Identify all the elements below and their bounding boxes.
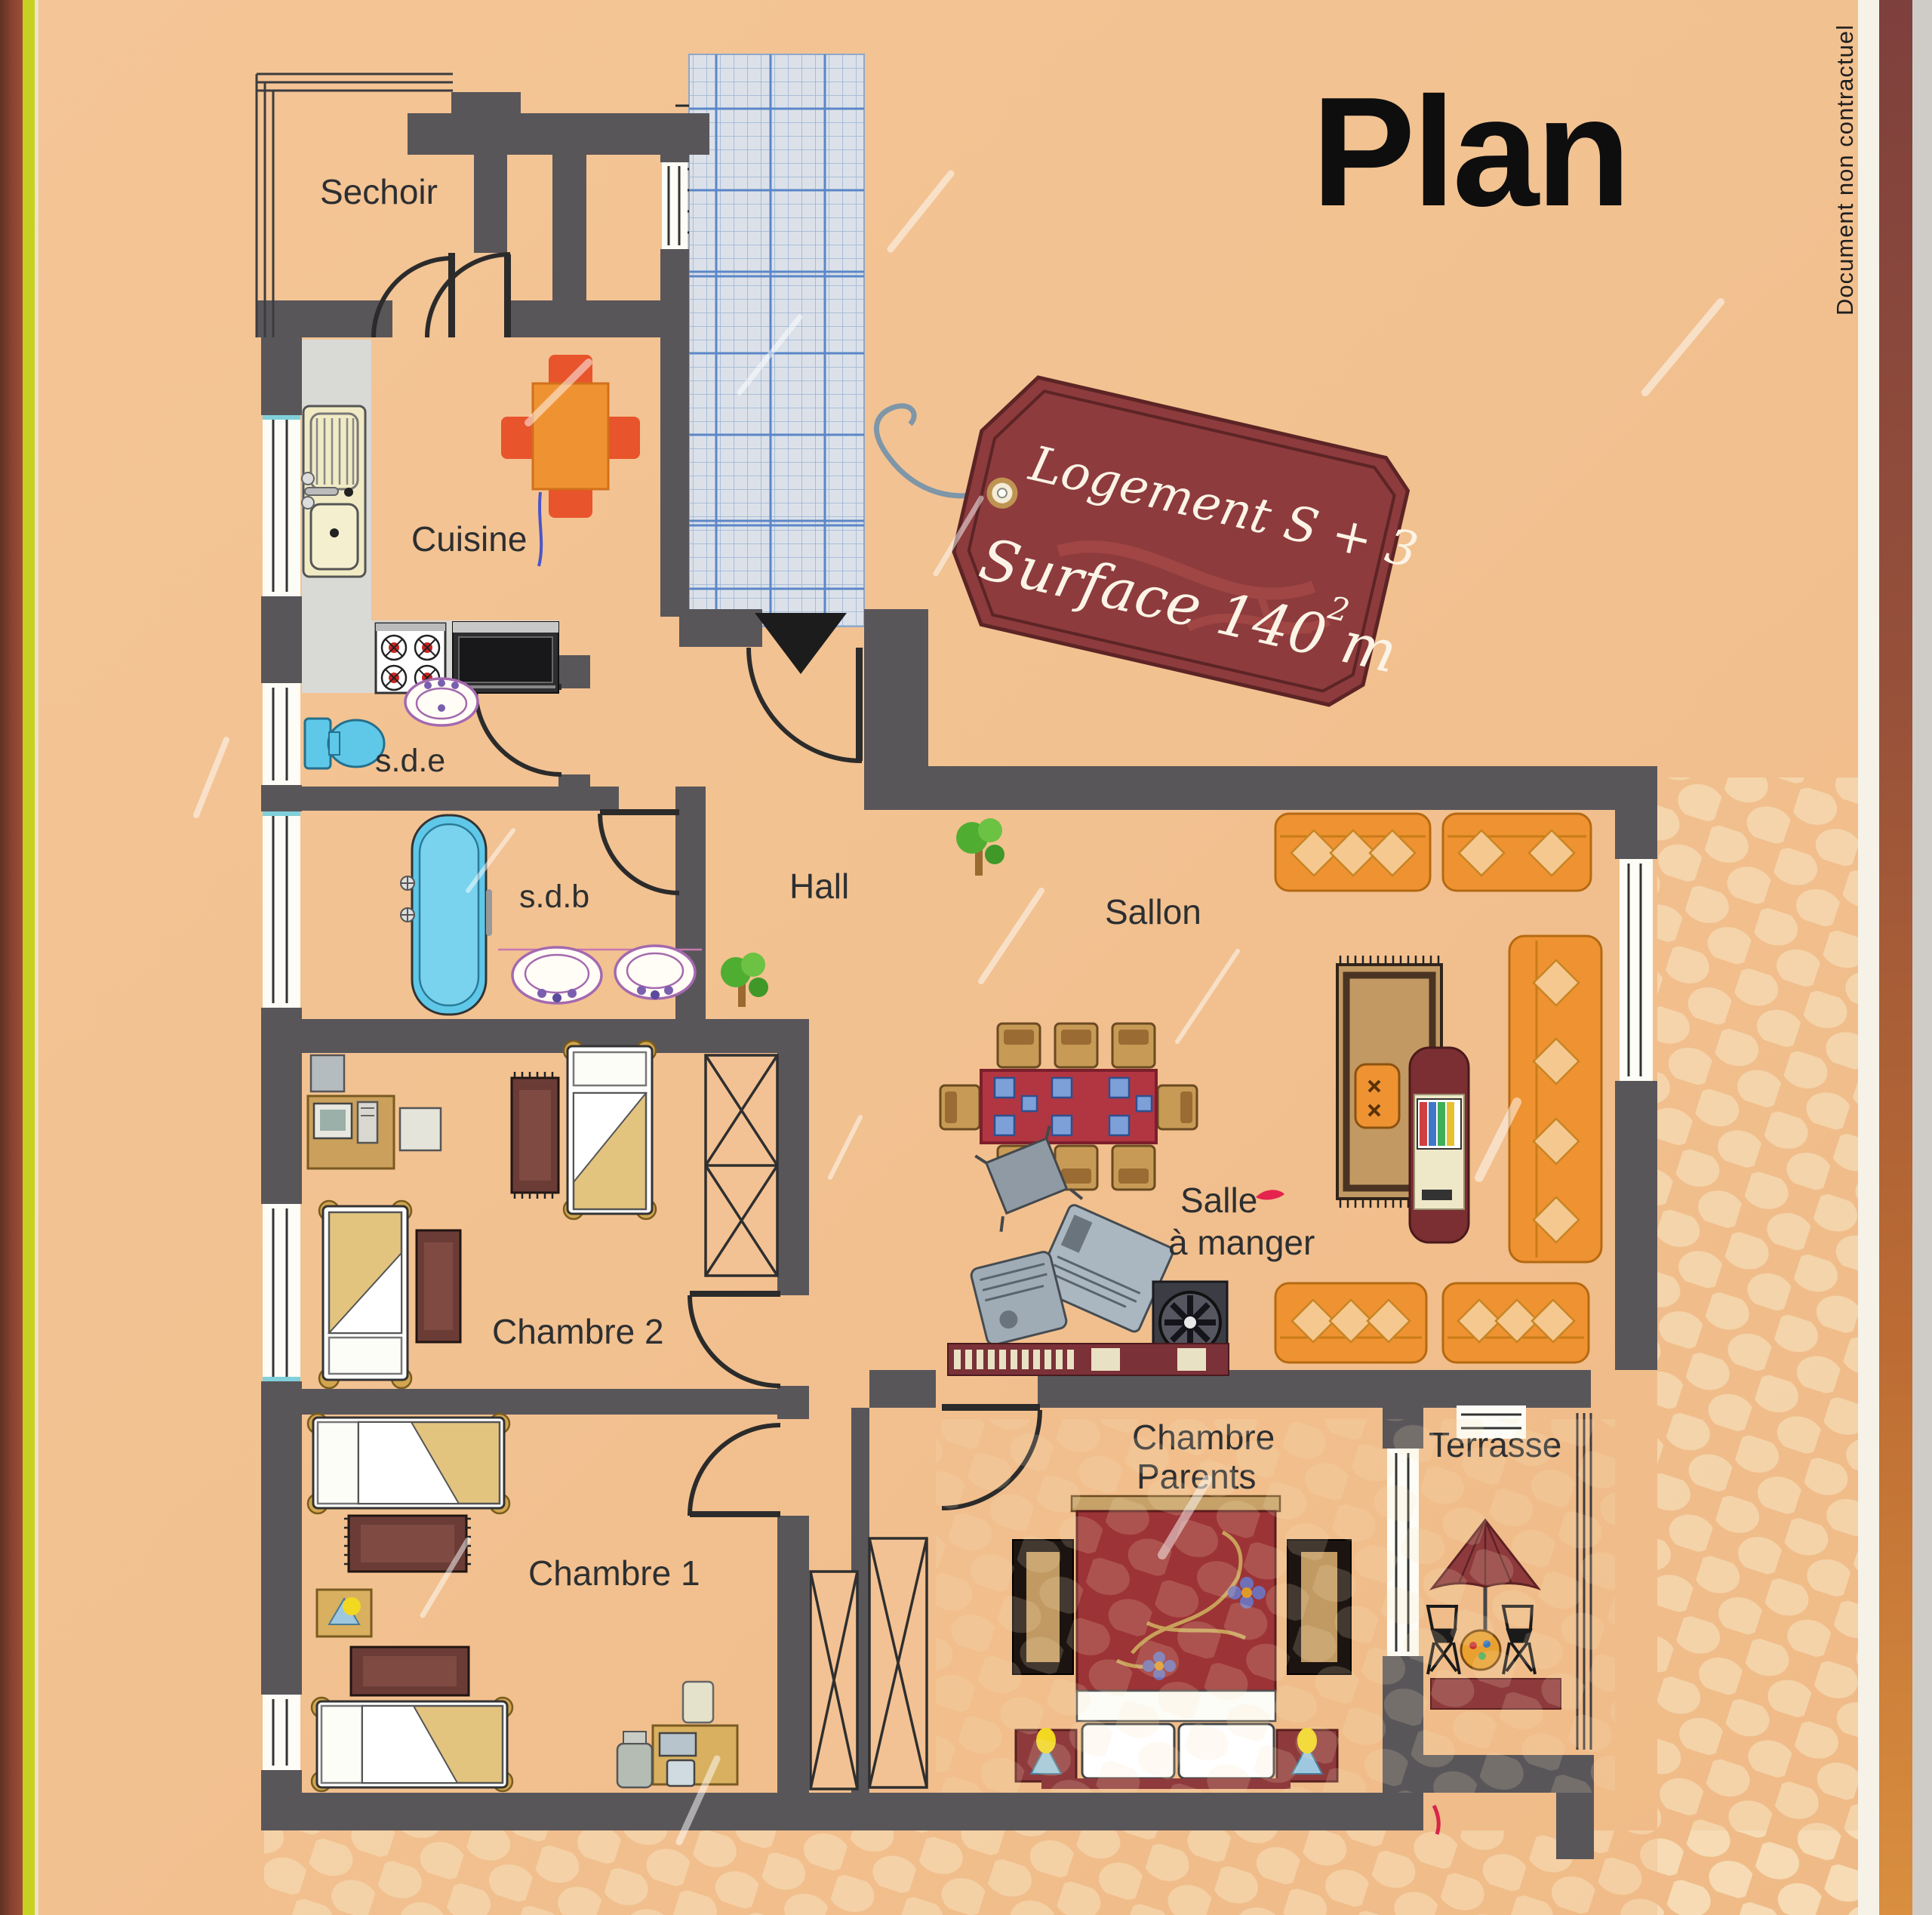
scanned-floor-plan-page: Sechoir Cuisine s.d.e s.d.b Hall Sallon … xyxy=(0,0,1932,1915)
page-title: Plan xyxy=(1312,65,1628,239)
window-chambre2 xyxy=(263,1204,300,1381)
sdb-washbasin-1 xyxy=(512,947,601,1003)
halftone-dots-right xyxy=(1657,777,1861,1915)
window-chambre1 xyxy=(263,1695,300,1770)
wall-kitchen-right xyxy=(660,337,689,617)
wall-bottom xyxy=(261,1793,1423,1830)
wall-hall-west-2 xyxy=(777,1386,809,1419)
room-label-cuisine: Cuisine xyxy=(411,519,527,559)
room-label-sdb: s.d.b xyxy=(519,879,589,915)
side-note-vertical: Document non contractuel xyxy=(1832,24,1858,316)
chambre2-bed-2 xyxy=(319,1201,411,1388)
tv-screen xyxy=(1417,1099,1461,1149)
wall-left-5 xyxy=(261,1381,302,1695)
wall-chambre-divider xyxy=(302,1389,777,1415)
right-gray-edge xyxy=(1912,0,1932,1915)
room-label-sallon: Sallon xyxy=(1105,892,1201,931)
wall-entry-right xyxy=(864,609,928,810)
room-label-salle-line1: Salle xyxy=(1180,1181,1257,1220)
wall-entry-left xyxy=(679,609,762,647)
kitchen-sink xyxy=(302,406,365,577)
wall-sdb-right xyxy=(675,787,706,1053)
window-sde xyxy=(263,683,300,785)
sofa-right xyxy=(1509,936,1601,1262)
wall-left-2 xyxy=(261,596,302,683)
left-white-line xyxy=(35,0,38,1915)
wall-sde-sdb xyxy=(261,787,619,811)
wall-shaft-right-bottom xyxy=(660,249,689,300)
room-label-hall: Hall xyxy=(789,867,849,906)
left-yellow-stripe xyxy=(23,0,35,1915)
chambre1-bed-1 xyxy=(308,1414,509,1513)
room-label-salle-line2: à manger xyxy=(1168,1223,1315,1262)
tv-cabinet xyxy=(1410,1048,1469,1242)
floor-plan-svg: Sechoir Cuisine s.d.e s.d.b Hall Sallon … xyxy=(0,0,1932,1915)
bathtub-handle xyxy=(486,889,492,936)
sofa-bottom-1 xyxy=(1275,1283,1426,1362)
wall-parents-top-1 xyxy=(869,1370,936,1408)
sde-washbasin xyxy=(405,679,478,725)
wall-sde-right-top xyxy=(558,655,590,688)
chambre1-bed-2 xyxy=(312,1698,512,1791)
wall-chambre2-top xyxy=(261,1019,809,1053)
wall-terrasse-top xyxy=(1383,1370,1591,1408)
left-border-band xyxy=(0,0,23,1915)
bathtub xyxy=(401,815,492,1014)
shelf-unit xyxy=(948,1344,1229,1375)
halftone-overlay-faint xyxy=(936,1419,1615,1793)
chambre2-rug-1 xyxy=(512,1072,558,1199)
wall-sallon-top xyxy=(928,766,1615,810)
chambre1-rug-2 xyxy=(351,1647,469,1695)
window-sdb xyxy=(263,811,300,1008)
perfume-bottle-tall xyxy=(683,1682,713,1723)
kitchen-table xyxy=(533,383,608,489)
chambre2-wardrobe xyxy=(706,1055,777,1276)
hall-wardrobe xyxy=(811,1572,857,1789)
wall-top-stub xyxy=(451,92,521,115)
wall-left-1 xyxy=(261,337,302,415)
halftone-dots-bottom xyxy=(264,1830,1861,1915)
right-border-band xyxy=(1879,0,1914,1915)
room-label-chambre2: Chambre 2 xyxy=(492,1312,664,1351)
wall-hall-west-3 xyxy=(777,1516,809,1793)
sofa-bottom-2 xyxy=(1443,1283,1589,1362)
toilet xyxy=(305,719,384,768)
window-sallon-right xyxy=(1620,859,1653,1081)
sdb-washbasin-2 xyxy=(615,946,695,999)
wall-shaft-right-top xyxy=(660,113,689,162)
wall-sechoir-bottom-right xyxy=(510,300,689,337)
window-shaft xyxy=(662,162,688,249)
sofa-top-2 xyxy=(1443,814,1591,891)
room-label-sechoir: Sechoir xyxy=(320,172,438,211)
oven xyxy=(453,622,558,693)
room-label-sde: s.d.e xyxy=(375,743,445,779)
coffee-table xyxy=(1355,1064,1399,1128)
wall-sallon-right-1 xyxy=(1615,766,1657,859)
chambre1-nightstand xyxy=(317,1590,371,1636)
wall-hall-west-1 xyxy=(777,1053,809,1295)
wall-sde-right-bottom xyxy=(558,774,590,787)
wall-sallon-right-2 xyxy=(1615,1081,1657,1370)
perfume-bottle xyxy=(617,1744,652,1787)
tv-cabinet-buttons xyxy=(1422,1190,1452,1200)
wall-shaft-left xyxy=(552,155,586,300)
window-kitchen xyxy=(263,415,300,596)
wall-sechoir-right xyxy=(474,113,507,253)
sofa-top-1 xyxy=(1275,814,1430,891)
parents-wardrobe xyxy=(869,1538,927,1787)
wall-terrasse-stub xyxy=(1556,1793,1594,1859)
chambre2-bed-1 xyxy=(564,1041,656,1219)
chambre2-rug-2 xyxy=(417,1230,460,1342)
desk-chair xyxy=(400,1108,441,1150)
right-white-strip xyxy=(1858,0,1881,1915)
room-label-chambre1: Chambre 1 xyxy=(528,1553,700,1593)
